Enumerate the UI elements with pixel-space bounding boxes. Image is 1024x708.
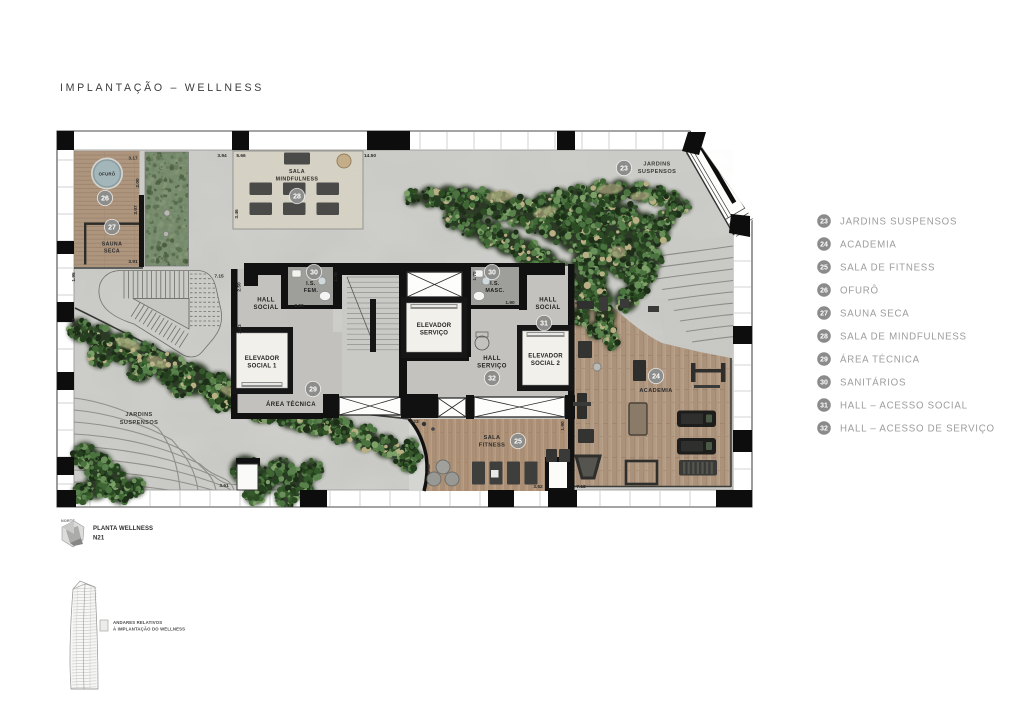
svg-text:SALA: SALA <box>289 169 305 175</box>
svg-text:SALA: SALA <box>484 435 501 441</box>
svg-text:SERVIÇO: SERVIÇO <box>420 331 448 337</box>
svg-text:SOCIAL 2: SOCIAL 2 <box>531 361 561 367</box>
svg-text:SANITÁRIOS: SANITÁRIOS <box>840 378 906 389</box>
svg-text:8.93: 8.93 <box>574 295 580 305</box>
svg-text:25: 25 <box>820 264 828 271</box>
svg-text:27: 27 <box>820 310 828 317</box>
svg-text:SOCIAL: SOCIAL <box>253 305 278 311</box>
svg-text:3.61: 3.61 <box>219 483 229 489</box>
svg-text:30: 30 <box>820 379 828 386</box>
svg-text:ANDARES RELATIVOS: ANDARES RELATIVOS <box>113 620 162 625</box>
svg-text:JARDINS: JARDINS <box>125 412 152 418</box>
svg-text:2.00: 2.00 <box>294 303 304 309</box>
svg-text:SAUNA: SAUNA <box>102 242 122 248</box>
svg-text:3.33: 3.33 <box>426 464 432 474</box>
svg-text:N21: N21 <box>93 536 105 542</box>
svg-text:MASC.: MASC. <box>485 288 504 294</box>
svg-text:SALA DE MINDFULNESS: SALA DE MINDFULNESS <box>840 332 967 343</box>
svg-text:SUSPENSOS: SUSPENSOS <box>638 169 676 175</box>
svg-text:JARDINS SUSPENSOS: JARDINS SUSPENSOS <box>840 217 957 228</box>
svg-text:3.94: 3.94 <box>217 153 227 159</box>
svg-text:23: 23 <box>820 218 828 225</box>
svg-text:ELEVADOR: ELEVADOR <box>417 323 452 329</box>
svg-text:MINDFULNESS: MINDFULNESS <box>276 177 319 183</box>
svg-text:FITNESS: FITNESS <box>479 443 505 449</box>
svg-text:7.18: 7.18 <box>576 484 586 490</box>
svg-text:28: 28 <box>293 193 301 200</box>
svg-text:1.95: 1.95 <box>71 272 77 282</box>
svg-text:24: 24 <box>652 373 660 380</box>
svg-text:HALL – ACESSO SOCIAL: HALL – ACESSO SOCIAL <box>840 401 968 412</box>
svg-text:ÁREA TÉCNICA: ÁREA TÉCNICA <box>840 355 920 366</box>
svg-text:PLANTA WELLNESS: PLANTA WELLNESS <box>93 526 153 532</box>
svg-text:29: 29 <box>820 356 828 363</box>
svg-text:JARDINS: JARDINS <box>643 162 670 168</box>
svg-text:24: 24 <box>820 241 828 248</box>
svg-text:ACADEMIA: ACADEMIA <box>639 388 672 394</box>
svg-text:26: 26 <box>101 195 109 202</box>
svg-text:2.50: 2.50 <box>237 282 243 292</box>
svg-text:2.23: 2.23 <box>237 324 243 334</box>
svg-text:1.93: 1.93 <box>71 318 77 328</box>
svg-text:OFURÔ: OFURÔ <box>99 172 116 177</box>
svg-text:SALA DE FITNESS: SALA DE FITNESS <box>840 263 935 274</box>
svg-text:30: 30 <box>310 269 318 276</box>
svg-text:1.90: 1.90 <box>560 421 566 431</box>
svg-text:HALL: HALL <box>539 298 557 304</box>
svg-text:3.91: 3.91 <box>128 259 138 265</box>
svg-text:32: 32 <box>488 375 496 382</box>
svg-text:3.46: 3.46 <box>234 209 240 219</box>
svg-text:28: 28 <box>820 333 828 340</box>
svg-text:3.17: 3.17 <box>128 156 138 162</box>
svg-text:ÁREA TÉCNICA: ÁREA TÉCNICA <box>266 400 316 408</box>
svg-text:23: 23 <box>620 165 628 172</box>
svg-text:SUSPENSOS: SUSPENSOS <box>120 420 158 426</box>
svg-text:SOCIAL: SOCIAL <box>535 305 560 311</box>
svg-text:27: 27 <box>108 224 116 231</box>
svg-text:30: 30 <box>488 269 496 276</box>
svg-text:26: 26 <box>820 287 828 294</box>
svg-text:5.66: 5.66 <box>236 153 246 159</box>
svg-text:ELEVADOR: ELEVADOR <box>245 356 280 362</box>
svg-text:À IMPLANTAÇÃO DO WELLNESS: À IMPLANTAÇÃO DO WELLNESS <box>113 627 185 632</box>
svg-text:OFURÔ: OFURÔ <box>840 286 879 297</box>
svg-text:HALL: HALL <box>483 356 501 362</box>
svg-text:HALL: HALL <box>257 298 275 304</box>
svg-text:14.50: 14.50 <box>364 153 376 159</box>
svg-text:29: 29 <box>309 386 317 393</box>
svg-text:HALL – ACESSO DE SERVIÇO: HALL – ACESSO DE SERVIÇO <box>840 424 995 435</box>
svg-text:7.15: 7.15 <box>214 274 224 280</box>
svg-text:2.00: 2.00 <box>135 178 141 188</box>
svg-text:ELEVADOR: ELEVADOR <box>528 354 563 360</box>
svg-text:3.07: 3.07 <box>133 205 139 215</box>
svg-text:32: 32 <box>820 425 828 432</box>
svg-text:FEM.: FEM. <box>304 288 319 294</box>
svg-text:1.90: 1.90 <box>505 300 515 306</box>
svg-text:1.75: 1.75 <box>472 271 478 281</box>
svg-text:1.75: 1.75 <box>333 272 339 282</box>
svg-text:SOCIAL 1: SOCIAL 1 <box>247 364 277 370</box>
svg-text:SECA: SECA <box>104 249 120 255</box>
svg-text:6.23: 6.23 <box>409 419 419 425</box>
svg-text:I.S.: I.S. <box>306 281 316 287</box>
svg-text:31: 31 <box>820 402 828 409</box>
svg-text:ACADEMIA: ACADEMIA <box>840 240 897 251</box>
svg-text:3.52: 3.52 <box>533 484 543 490</box>
svg-text:I.S.: I.S. <box>490 281 500 287</box>
svg-text:SAUNA SECA: SAUNA SECA <box>840 309 909 320</box>
svg-text:25: 25 <box>514 438 522 445</box>
svg-text:IMPLANTAÇÃO – WELLNESS: IMPLANTAÇÃO – WELLNESS <box>60 81 264 94</box>
svg-text:31: 31 <box>540 320 548 327</box>
svg-text:SERVIÇO: SERVIÇO <box>477 364 507 370</box>
